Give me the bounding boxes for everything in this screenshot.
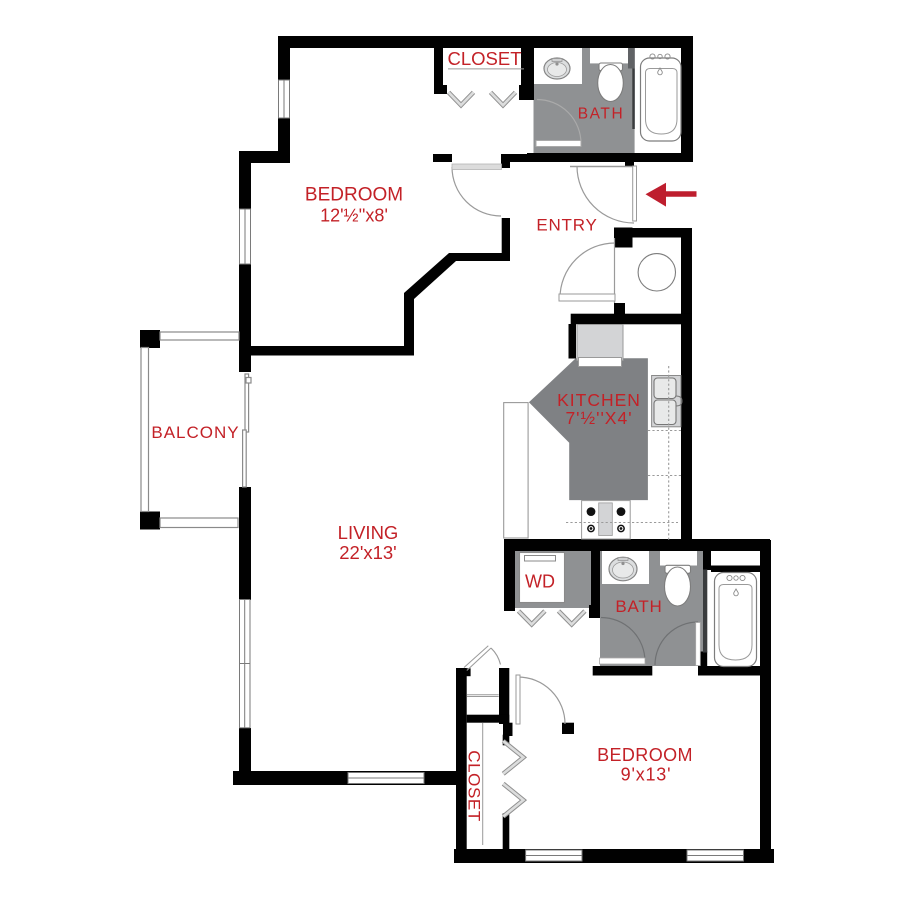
svg-text:CLOSET: CLOSET: [447, 48, 521, 69]
svg-text:BALCONY: BALCONY: [151, 423, 239, 442]
svg-text:BATH: BATH: [578, 106, 625, 123]
svg-text:12'½''x8': 12'½''x8': [320, 206, 388, 226]
svg-text:BATH: BATH: [615, 597, 662, 616]
svg-text:BEDROOM: BEDROOM: [597, 745, 693, 765]
svg-text:9'x13': 9'x13': [621, 765, 672, 785]
svg-text:LIVING: LIVING: [338, 522, 399, 543]
svg-text:7'½''X4': 7'½''X4': [565, 408, 632, 428]
svg-text:ENTRY: ENTRY: [536, 216, 597, 235]
svg-text:CLOSET: CLOSET: [465, 750, 484, 822]
svg-text:BEDROOM: BEDROOM: [305, 185, 403, 206]
svg-text:22'x13': 22'x13': [339, 542, 396, 563]
svg-text:WD: WD: [525, 572, 555, 592]
svg-text:KITCHEN: KITCHEN: [557, 390, 641, 410]
